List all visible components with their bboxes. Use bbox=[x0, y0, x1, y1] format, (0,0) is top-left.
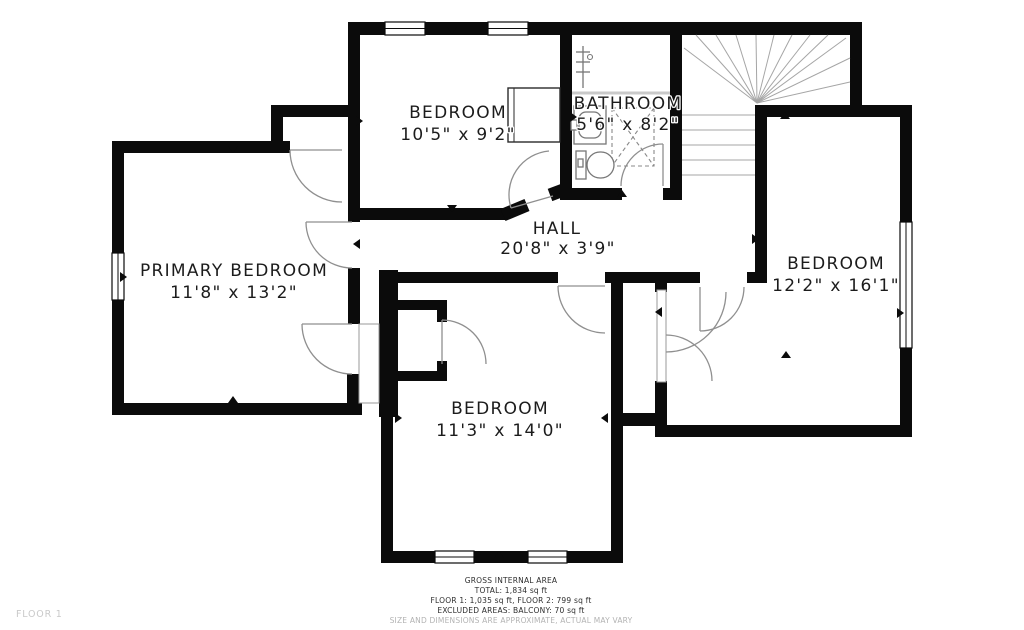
wardrobe-symbol bbox=[508, 88, 560, 142]
door-vestibule-closet-bottom bbox=[666, 335, 712, 381]
footer-disclaimer: SIZE AND DIMENSIONS ARE APPROXIMATE, ACT… bbox=[390, 616, 633, 625]
room-dims-bedroom-right: 12'2" x 16'1" bbox=[772, 276, 900, 296]
footer-excluded: EXCLUDED AREAS: BALCONY: 70 sq ft bbox=[437, 606, 584, 615]
room-label-bedroom-right: BEDROOM bbox=[787, 254, 885, 274]
room-label-bedroom-top: BEDROOM bbox=[409, 103, 507, 123]
window bbox=[900, 222, 912, 348]
floor-plan-page: BEDROOM 10'5" x 9'2" BATHROOM 5'6" x 8'2… bbox=[0, 0, 1024, 630]
toilet-symbol bbox=[576, 151, 614, 179]
door-vestibule-closet-top bbox=[666, 292, 726, 352]
towel-rail-symbol bbox=[576, 46, 593, 88]
primary-closet bbox=[359, 324, 379, 403]
window bbox=[385, 22, 425, 35]
room-dims-primary-bedroom: 11'8" x 13'2" bbox=[170, 283, 298, 303]
double-door-leaves bbox=[657, 290, 666, 382]
door-hall-vestibule bbox=[700, 287, 744, 331]
room-dims-bathroom: 5'6" x 8'2" bbox=[576, 115, 679, 135]
door-bottom-closet bbox=[442, 320, 486, 364]
floor-label: FLOOR 1 bbox=[16, 609, 63, 620]
room-dims-hall: 20'8" x 3'9" bbox=[500, 239, 616, 259]
floor-plan-canvas: BEDROOM 10'5" x 9'2" BATHROOM 5'6" x 8'2… bbox=[0, 0, 1024, 630]
room-dims-bedroom-bottom: 11'3" x 14'0" bbox=[436, 421, 564, 441]
footer-floors: FLOOR 1: 1,035 sq ft, FLOOR 2: 799 sq ft bbox=[431, 596, 592, 605]
room-label-primary-bedroom: PRIMARY BEDROOM bbox=[140, 261, 328, 281]
window bbox=[528, 551, 567, 563]
footer-area-summary: GROSS INTERNAL AREA TOTAL: 1,834 sq ft F… bbox=[390, 576, 633, 625]
door-top-closet bbox=[290, 150, 342, 202]
room-label-bedroom-bottom: BEDROOM bbox=[451, 399, 549, 419]
room-label-bathroom: BATHROOM bbox=[574, 94, 683, 114]
footer-title: GROSS INTERNAL AREA bbox=[465, 576, 558, 585]
window bbox=[435, 551, 474, 563]
window bbox=[488, 22, 528, 35]
room-label-hall: HALL bbox=[533, 219, 582, 239]
door-bedroom-top bbox=[509, 151, 553, 208]
door-primary-closet bbox=[302, 324, 352, 374]
room-dims-bedroom-top: 10'5" x 9'2" bbox=[400, 125, 516, 145]
footer-total: TOTAL: 1,834 sq ft bbox=[474, 586, 548, 595]
door-bedroom-bottom bbox=[558, 286, 605, 333]
